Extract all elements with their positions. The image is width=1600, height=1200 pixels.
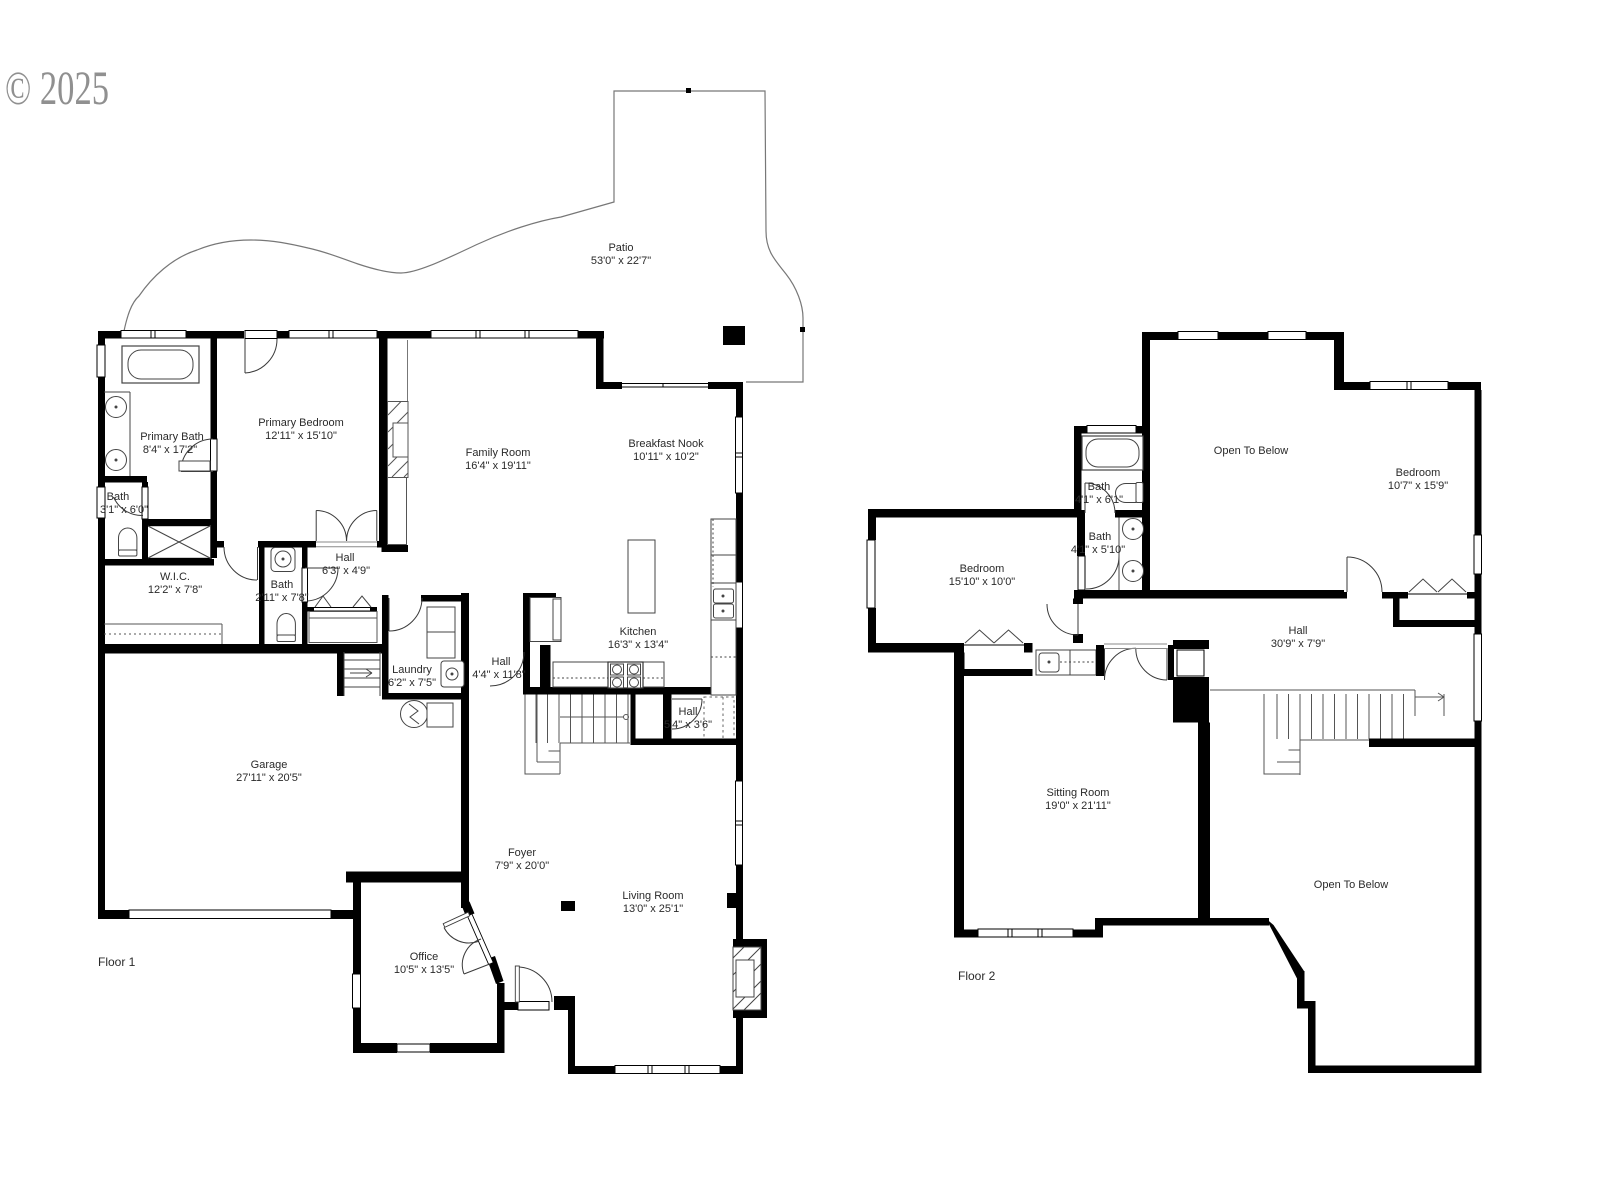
svg-text:4'1" x 6'1": 4'1" x 6'1" xyxy=(1075,494,1123,506)
svg-text:53'0" x 22'7": 53'0" x 22'7" xyxy=(591,255,651,267)
svg-text:Hall: Hall xyxy=(336,552,355,564)
svg-text:16'3" x 13'4": 16'3" x 13'4" xyxy=(608,639,668,651)
svg-text:6'3" x 4'9": 6'3" x 4'9" xyxy=(322,565,370,577)
svg-text:Office: Office xyxy=(410,951,439,963)
svg-text:12'2" x 7'8": 12'2" x 7'8" xyxy=(148,584,202,596)
svg-text:Bath: Bath xyxy=(1088,481,1111,493)
svg-text:Bedroom: Bedroom xyxy=(960,563,1005,575)
svg-text:Floor 2: Floor 2 xyxy=(958,969,996,983)
svg-text:19'0" x 21'11": 19'0" x 21'11" xyxy=(1045,800,1111,812)
svg-text:Primary Bedroom: Primary Bedroom xyxy=(258,417,344,429)
svg-text:Hall: Hall xyxy=(1289,625,1308,637)
svg-text:10'11" x 10'2": 10'11" x 10'2" xyxy=(633,451,699,463)
svg-text:2'11" x 7'8": 2'11" x 7'8" xyxy=(255,592,308,604)
svg-text:15'10" x 10'0": 15'10" x 10'0" xyxy=(949,576,1016,588)
svg-text:4'4" x 11'8": 4'4" x 11'8" xyxy=(472,669,525,681)
svg-text:Bath: Bath xyxy=(1089,531,1112,543)
svg-text:6'2" x 7'5": 6'2" x 7'5" xyxy=(388,677,436,689)
svg-text:Breakfast Nook: Breakfast Nook xyxy=(628,438,704,450)
svg-text:Kitchen: Kitchen xyxy=(620,626,657,638)
svg-text:Bedroom: Bedroom xyxy=(1396,467,1441,479)
svg-text:10'7" x 15'9": 10'7" x 15'9" xyxy=(1388,480,1448,492)
svg-text:13'0" x 25'1": 13'0" x 25'1" xyxy=(623,903,683,915)
svg-text:Laundry: Laundry xyxy=(392,664,432,676)
svg-text:Sitting Room: Sitting Room xyxy=(1047,787,1110,799)
svg-text:3'1" x 6'0": 3'1" x 6'0" xyxy=(100,504,148,516)
svg-text:12'11" x 15'10": 12'11" x 15'10" xyxy=(265,430,337,442)
svg-text:© 2025: © 2025 xyxy=(5,62,109,115)
svg-text:30'9" x 7'9": 30'9" x 7'9" xyxy=(1271,638,1325,650)
svg-text:Floor 1: Floor 1 xyxy=(98,955,136,969)
svg-text:Primary Bath: Primary Bath xyxy=(140,431,204,443)
svg-text:Hall: Hall xyxy=(492,656,511,668)
svg-text:7'9" x 20'0": 7'9" x 20'0" xyxy=(495,860,549,872)
svg-text:4'1" x 5'10": 4'1" x 5'10" xyxy=(1071,544,1125,556)
svg-text:10'5" x 13'5": 10'5" x 13'5" xyxy=(394,964,454,976)
svg-text:Open To Below: Open To Below xyxy=(1214,445,1288,457)
svg-text:W.I.C.: W.I.C. xyxy=(160,571,190,583)
svg-text:Living Room: Living Room xyxy=(622,890,683,902)
svg-text:Garage: Garage xyxy=(251,759,288,771)
svg-text:Family Room: Family Room xyxy=(466,447,531,459)
svg-text:16'4" x 19'11": 16'4" x 19'11" xyxy=(465,460,531,472)
svg-text:Open To Below: Open To Below xyxy=(1314,879,1388,891)
svg-text:Hall: Hall xyxy=(679,706,698,718)
svg-text:27'11" x 20'5": 27'11" x 20'5" xyxy=(236,772,302,784)
svg-text:Foyer: Foyer xyxy=(508,847,536,859)
svg-text:Patio: Patio xyxy=(608,242,633,254)
svg-text:5'4" x 3'6": 5'4" x 3'6" xyxy=(664,719,712,731)
svg-text:Bath: Bath xyxy=(107,491,130,503)
svg-text:Bath: Bath xyxy=(271,579,294,591)
svg-text:8'4" x 17'2": 8'4" x 17'2" xyxy=(143,444,197,456)
